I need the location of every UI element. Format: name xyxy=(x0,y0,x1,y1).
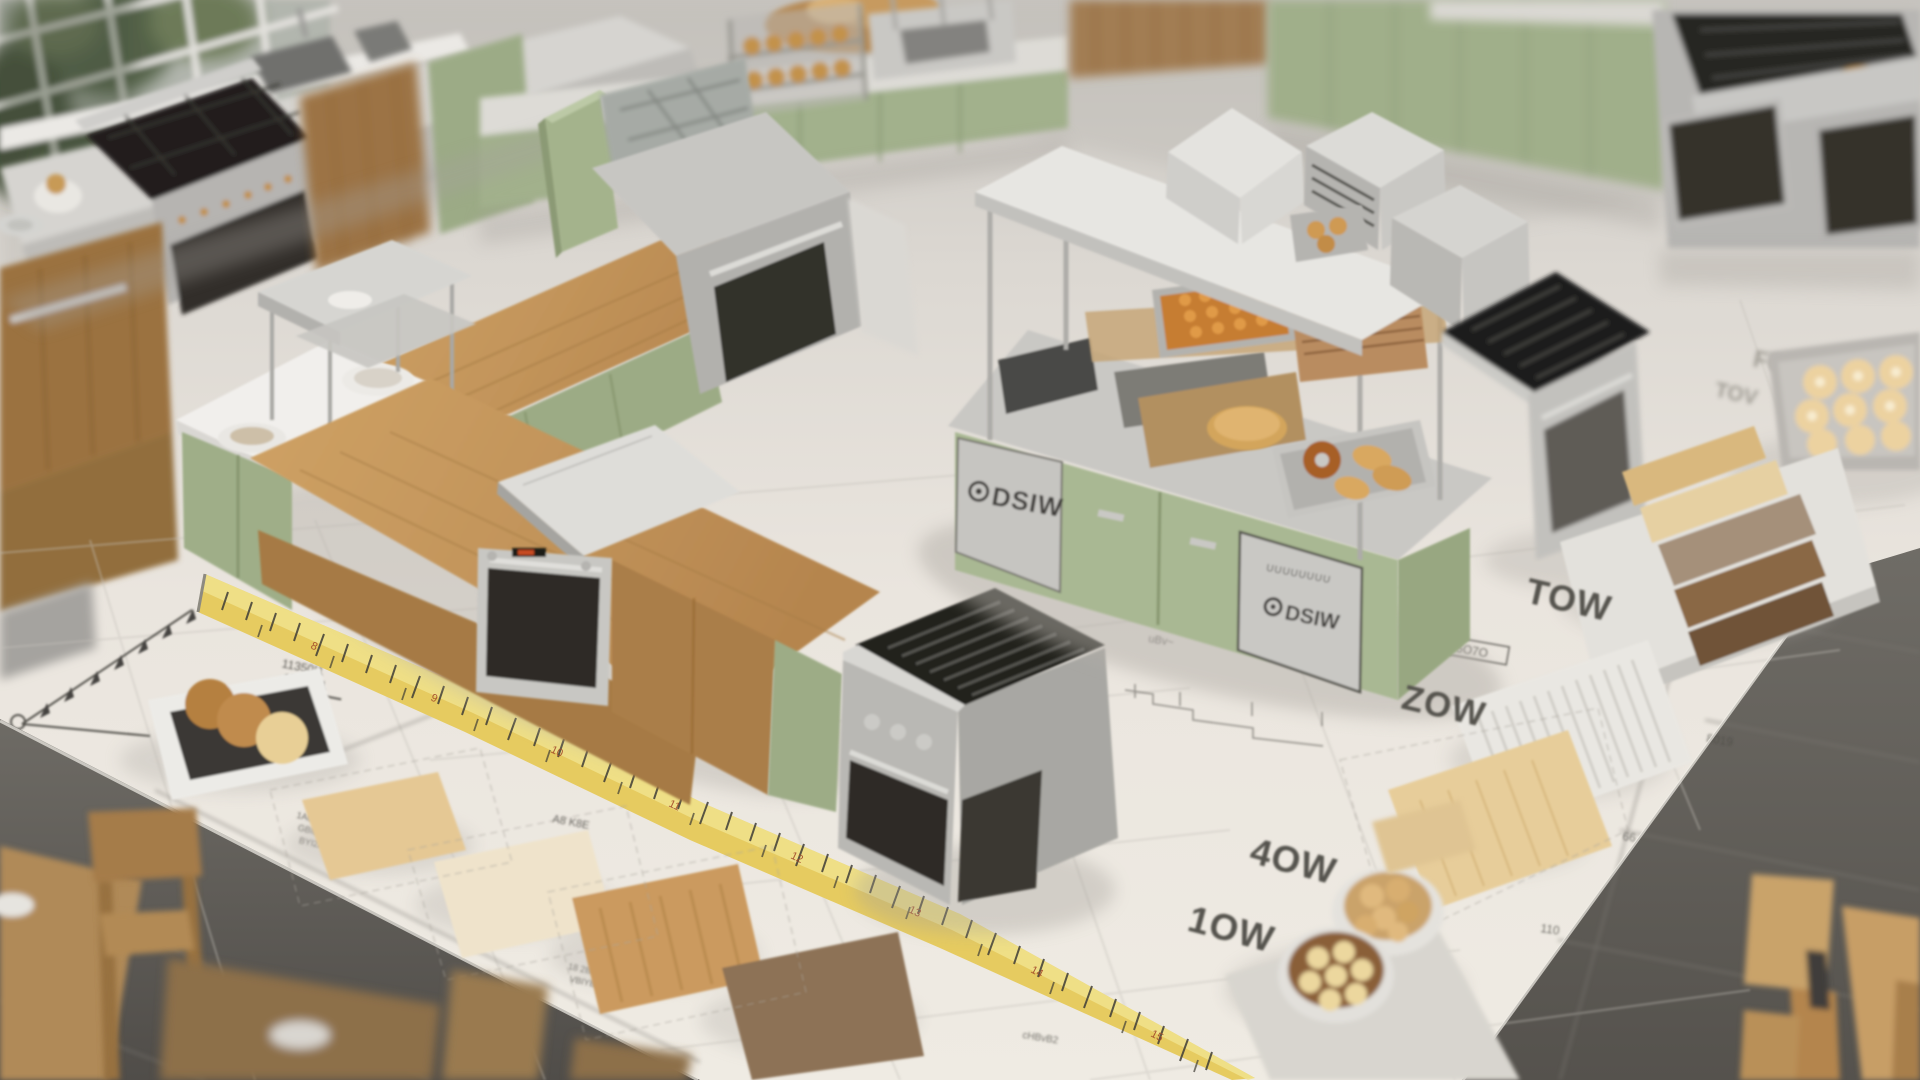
svg-text:110: 110 xyxy=(1540,921,1561,938)
